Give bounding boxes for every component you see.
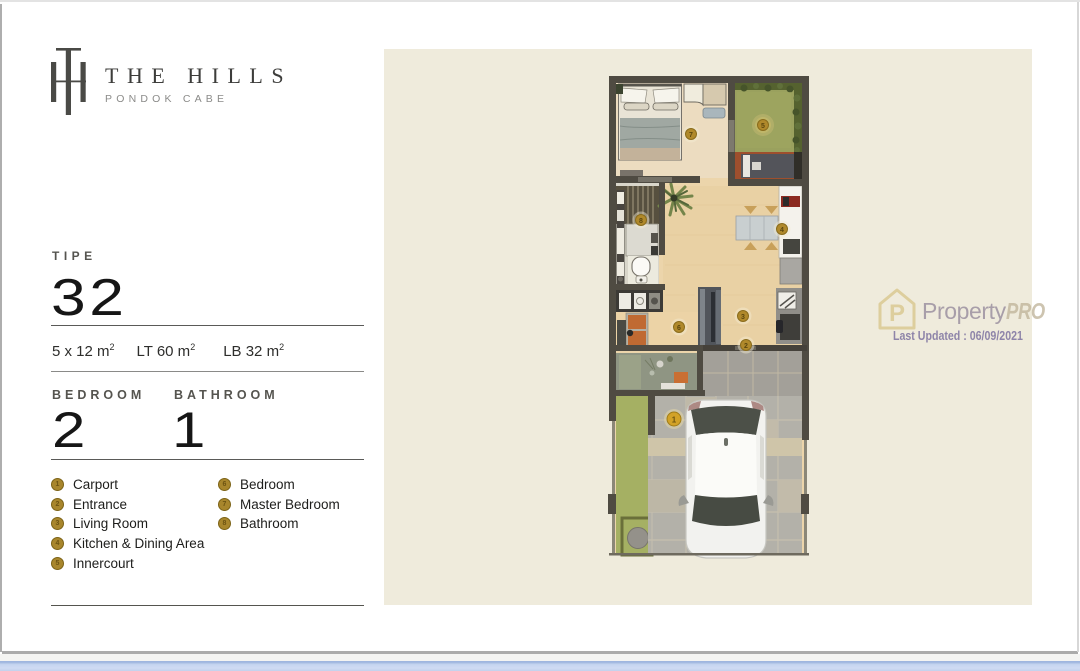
svg-text:8: 8 [639, 218, 643, 225]
svg-text:4: 4 [780, 227, 784, 234]
svg-text:5: 5 [761, 123, 765, 130]
svg-text:P: P [889, 300, 905, 327]
svg-text:1: 1 [672, 416, 677, 425]
svg-text:2: 2 [744, 343, 748, 350]
svg-text:7: 7 [689, 132, 693, 139]
svg-text:6: 6 [677, 325, 681, 332]
svg-text:3: 3 [741, 314, 745, 321]
